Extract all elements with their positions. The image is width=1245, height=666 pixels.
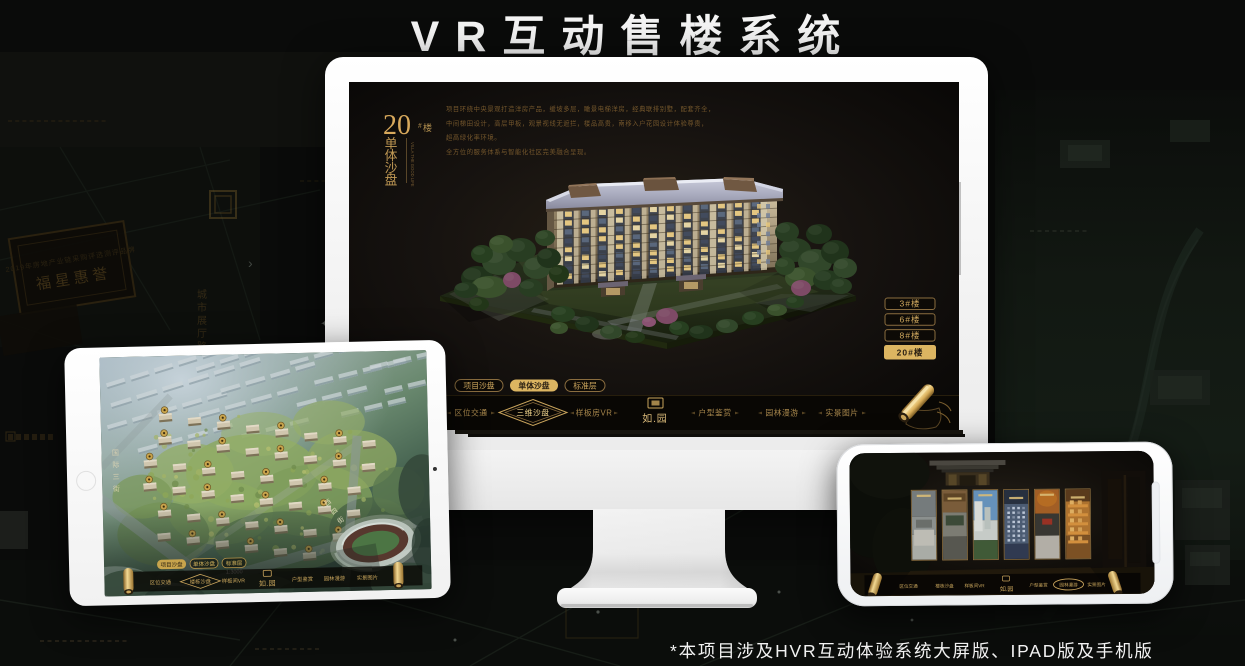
- svg-text:园林漫游: 园林漫游: [765, 408, 798, 418]
- svg-text:盘: 盘: [385, 173, 398, 188]
- svg-text:三维沙盘: 三维沙盘: [516, 408, 549, 418]
- svg-text:6#楼: 6#楼: [900, 315, 921, 325]
- svg-text:街: 街: [113, 484, 120, 493]
- svg-text:20#楼: 20#楼: [897, 348, 924, 358]
- svg-text:如.园: 如.园: [259, 579, 276, 588]
- svg-text:如.园: 如.园: [1000, 585, 1014, 593]
- svg-text:3#楼: 3#楼: [900, 299, 921, 309]
- svg-text:8#楼: 8#楼: [900, 330, 921, 340]
- svg-text:际: 际: [112, 460, 119, 469]
- svg-text:厅: 厅: [197, 329, 207, 340]
- svg-text:户型鉴赏: 户型鉴赏: [698, 408, 731, 418]
- svg-text:市: 市: [197, 301, 207, 314]
- svg-text:城: 城: [197, 289, 207, 301]
- svg-text:项目沙盘: 项目沙盘: [463, 380, 494, 390]
- svg-text:如.园: 如.园: [642, 412, 668, 425]
- svg-text:实景图片: 实景图片: [825, 408, 858, 418]
- svg-text:国: 国: [112, 449, 119, 457]
- svg-text:标准层: 标准层: [573, 380, 597, 390]
- svg-text:三: 三: [112, 473, 119, 481]
- svg-text:区位交通: 区位交通: [454, 408, 487, 418]
- svg-text:单体沙盘: 单体沙盘: [518, 380, 549, 390]
- svg-text:VILLA THE GOOD LIFE: VILLA THE GOOD LIFE: [410, 142, 415, 187]
- svg-text:›: ›: [248, 255, 253, 271]
- svg-text:#: #: [418, 121, 422, 130]
- svg-text:楼: 楼: [423, 122, 432, 133]
- svg-text:样板房VR: 样板房VR: [576, 408, 613, 418]
- svg-text:展: 展: [197, 315, 207, 327]
